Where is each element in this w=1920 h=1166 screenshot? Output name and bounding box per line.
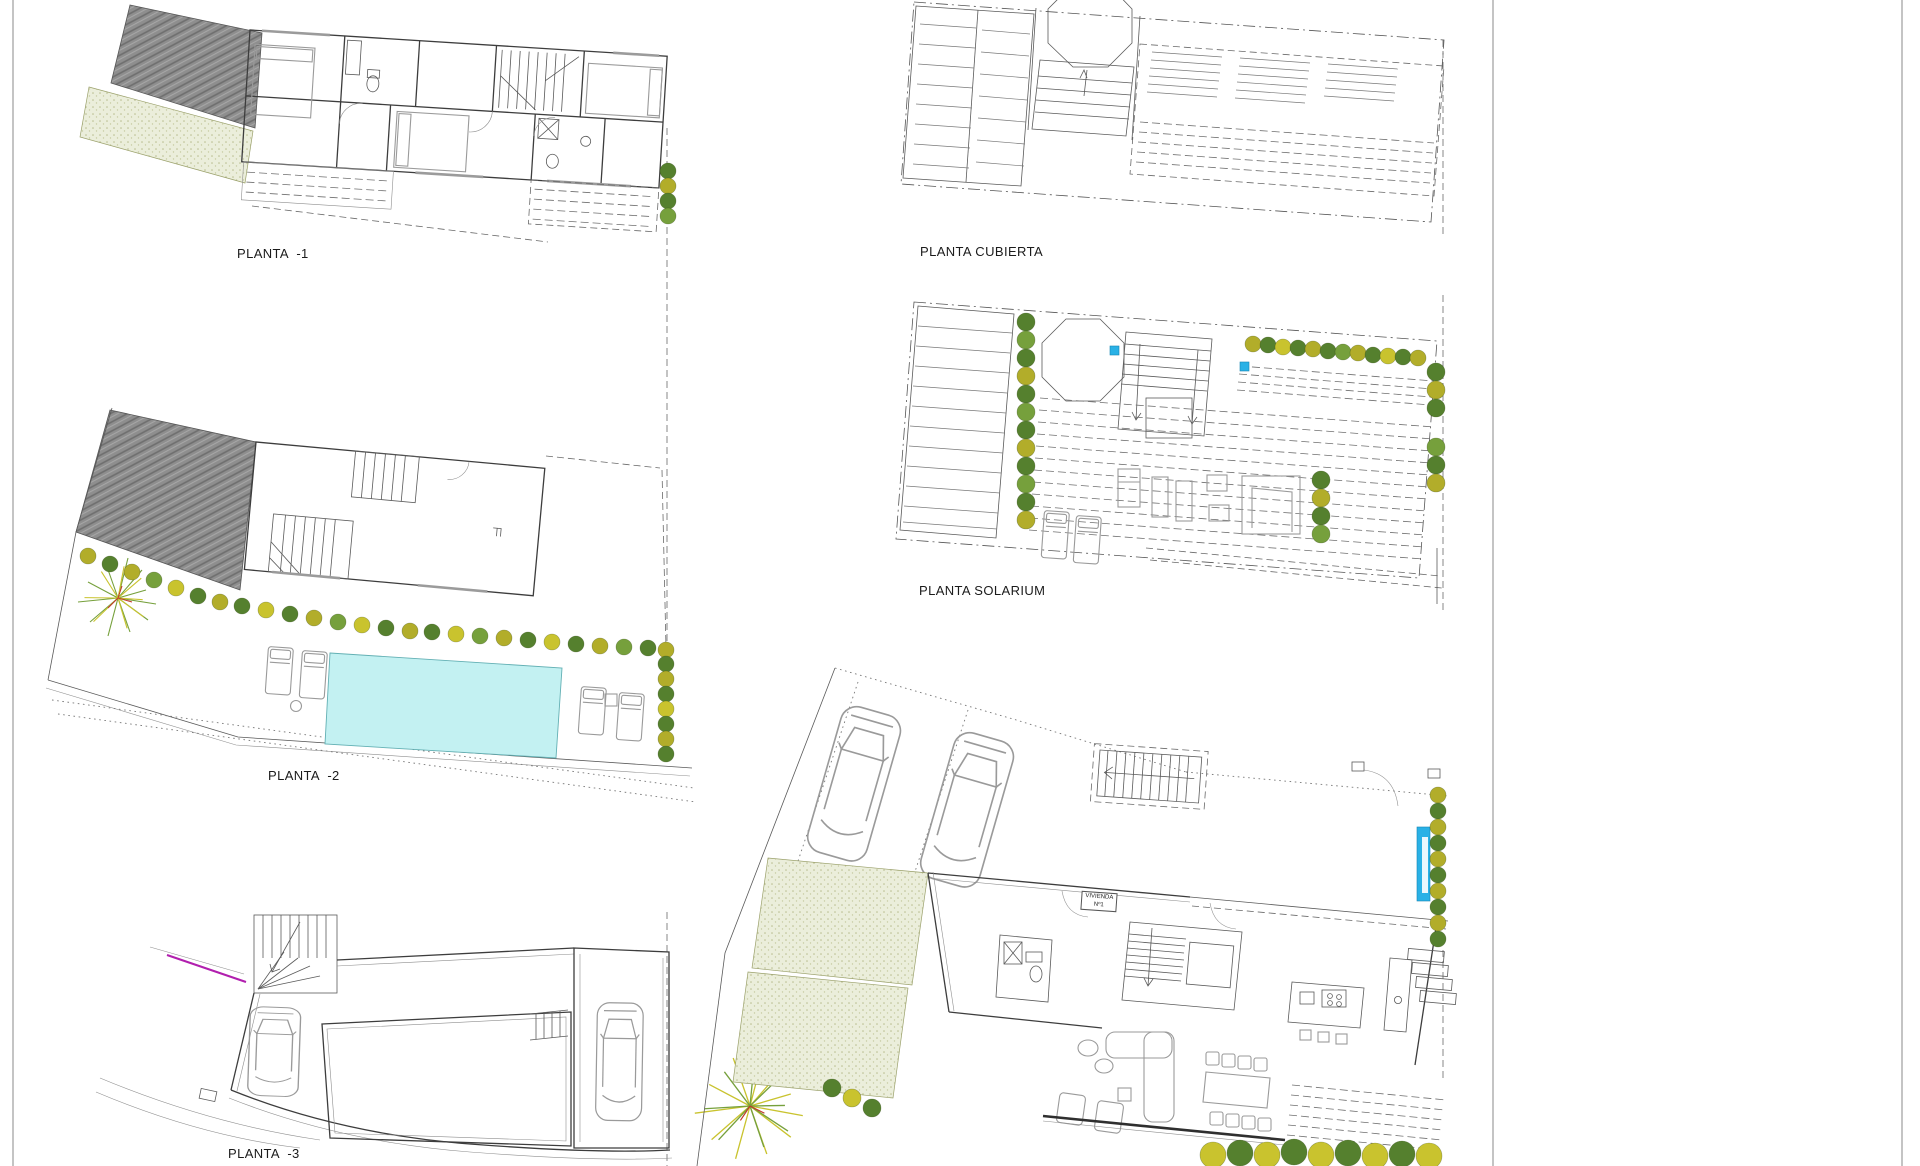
roof-deck-lines bbox=[1136, 122, 1434, 183]
plan-planta-cubierta bbox=[901, 0, 1444, 222]
villa-walls bbox=[928, 762, 1448, 1065]
stairs bbox=[254, 915, 337, 993]
kitchen bbox=[1288, 958, 1412, 1044]
car bbox=[247, 1006, 300, 1097]
deck-lines bbox=[1029, 366, 1434, 559]
deck-slats-left bbox=[903, 326, 1012, 529]
balcony-decking bbox=[241, 162, 659, 232]
label-planta-solarium: PLANTA SOLARIUM bbox=[919, 583, 1045, 598]
entry-stairs bbox=[1090, 744, 1208, 810]
plan-planta-3 bbox=[96, 915, 672, 1159]
label-vivienda-tag: VIVIENDA Nº1 bbox=[1080, 891, 1117, 912]
car bbox=[595, 1003, 643, 1121]
roof-slats-left bbox=[913, 24, 1030, 168]
bathroom-fixtures bbox=[340, 40, 596, 170]
drawing-sheet: PLANTA -1 PLANTA CUBIERTA PLANTA -2 PLAN… bbox=[0, 0, 1920, 1166]
upper-stairs bbox=[351, 451, 419, 503]
stairs bbox=[1122, 922, 1242, 1010]
tree-symbol bbox=[78, 558, 156, 636]
label-planta-3: PLANTA -3 bbox=[228, 1146, 300, 1161]
stairs bbox=[1118, 332, 1212, 438]
car bbox=[804, 703, 904, 865]
garage-walls bbox=[229, 948, 672, 1159]
hedge-trees bbox=[660, 163, 676, 224]
gravel-terrace bbox=[752, 858, 928, 985]
label-planta-2: PLANTA -2 bbox=[268, 768, 340, 783]
dining-set bbox=[1203, 1052, 1271, 1131]
jacuzzi-octagon bbox=[1042, 319, 1124, 401]
stairs bbox=[499, 50, 579, 113]
lap-pool-inner bbox=[1422, 837, 1428, 893]
detail-mark bbox=[492, 528, 501, 537]
plan-planta-2 bbox=[46, 408, 696, 802]
car bbox=[917, 729, 1017, 891]
plan-planta-1 bbox=[80, 5, 676, 242]
stairwell bbox=[1028, 8, 1140, 140]
hedge-trees bbox=[823, 787, 1446, 1166]
bed bbox=[248, 42, 662, 183]
gravel-terrace bbox=[733, 972, 908, 1098]
accent-marker bbox=[1110, 346, 1119, 355]
small-stairs bbox=[530, 1010, 568, 1040]
label-planta-1: PLANTA -1 bbox=[237, 246, 309, 261]
jacuzzi-octagon bbox=[1048, 0, 1132, 67]
terrace-deck-lines bbox=[1287, 1085, 1446, 1150]
bathroom bbox=[996, 935, 1052, 1002]
label-planta-cubierta: PLANTA CUBIERTA bbox=[920, 244, 1043, 259]
plan-planta-solarium bbox=[896, 302, 1445, 604]
utility-line bbox=[167, 955, 246, 982]
street-curb bbox=[96, 1078, 320, 1148]
plan-vivienda-ground-floor bbox=[697, 668, 1456, 1166]
accent-marker bbox=[1240, 362, 1249, 371]
stairs bbox=[268, 514, 353, 579]
glass-facade bbox=[1043, 1116, 1285, 1140]
swimming-pool bbox=[325, 653, 562, 758]
